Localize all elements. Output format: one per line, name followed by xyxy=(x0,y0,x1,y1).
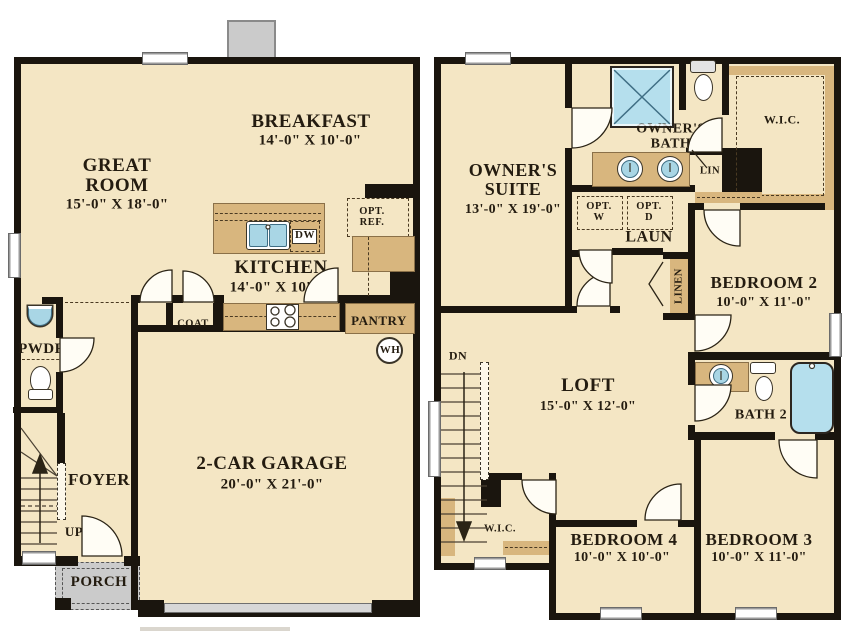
stove xyxy=(266,304,299,330)
wall xyxy=(14,57,420,64)
window xyxy=(829,313,842,357)
owners-suite-label: OWNER'S SUITE xyxy=(452,161,574,199)
wall xyxy=(663,313,695,320)
window xyxy=(22,551,56,565)
owners-toilet-tank xyxy=(690,60,716,73)
stair2-rail xyxy=(480,362,489,480)
window xyxy=(142,52,188,65)
wall xyxy=(365,184,413,198)
shower xyxy=(610,66,674,128)
wall xyxy=(688,210,695,315)
owners-bath-label: OWNER'S BATH xyxy=(624,122,718,151)
wall xyxy=(688,360,695,385)
porch-corner-wall xyxy=(55,598,71,610)
bath2-toilet-tank xyxy=(750,362,776,374)
wall xyxy=(688,203,704,210)
wall xyxy=(390,270,413,296)
garage-dims: 20'-0" X 21'-0" xyxy=(221,477,324,494)
owners-sink-right-basin xyxy=(661,160,679,178)
window xyxy=(428,401,441,477)
garage-door xyxy=(164,603,372,613)
wall xyxy=(612,248,663,255)
laun-label: LAUN xyxy=(625,230,672,247)
wall xyxy=(663,252,695,259)
wall xyxy=(42,297,63,304)
wall xyxy=(131,303,138,610)
opt-washer-label: OPT. W xyxy=(584,201,614,223)
bedroom2-label: BEDROOM 2 xyxy=(711,274,818,292)
ref-cabinet xyxy=(352,236,415,272)
opt-dash-line xyxy=(368,237,369,296)
wall xyxy=(679,64,686,110)
wic-owner-label: W.I.C. xyxy=(764,114,800,127)
dn-label: DN xyxy=(449,350,467,363)
wic2-label: W.I.C. xyxy=(484,523,516,534)
stair-rail xyxy=(57,463,66,520)
window xyxy=(8,233,21,278)
owners-suite-dims: 13'-0" X 19'-0" xyxy=(465,202,561,218)
wall xyxy=(688,432,775,440)
bedroom3-dims: 10'-0" X 11'-0" xyxy=(711,550,807,566)
bath2-toilet-bowl xyxy=(755,376,773,401)
linen-label: LINEN xyxy=(673,268,684,304)
bedroom2-dims: 10'-0" X 11'-0" xyxy=(716,295,812,311)
wall xyxy=(338,295,413,303)
window xyxy=(474,557,506,570)
island-sink-right xyxy=(269,224,287,247)
kitchen-label: KITCHEN xyxy=(234,258,327,278)
floorplan-canvas: GREAT ROOM 15'-0" X 18'-0" BREAKFAST 14'… xyxy=(0,0,843,632)
wic-dash-outline xyxy=(736,76,824,196)
wall xyxy=(434,57,441,570)
island-dash-1 xyxy=(215,213,321,214)
bathtub xyxy=(790,362,834,434)
opt-ref-label: OPT. REF. xyxy=(352,206,392,228)
owners-toilet-bowl xyxy=(694,74,713,101)
wall xyxy=(572,250,579,257)
breakfast-dims: 14'-0" X 10'-0" xyxy=(259,133,362,150)
wall xyxy=(495,473,522,480)
kitchen-dims: 14'-0" X 10'-0" xyxy=(230,280,333,297)
owners-sink-left-basin xyxy=(621,160,639,178)
wall xyxy=(372,600,413,615)
wic-shelf-right xyxy=(825,66,834,210)
lin-label: LIN xyxy=(700,165,720,176)
wic2-shelf-bottom xyxy=(503,541,549,555)
pwdr-toilet-base xyxy=(28,389,53,400)
porch-label: PORCH xyxy=(71,575,128,591)
wic2-shelf-left xyxy=(441,498,455,556)
wall xyxy=(549,473,556,570)
wall xyxy=(610,306,620,313)
bath2-sink-basin xyxy=(713,368,729,384)
wall xyxy=(549,563,556,620)
wall xyxy=(722,64,729,115)
wall xyxy=(413,57,420,617)
notch-patch-1 xyxy=(14,566,55,632)
island-sink-left xyxy=(249,224,268,247)
wall xyxy=(549,520,637,527)
wall xyxy=(56,372,63,410)
coat-label: COAT xyxy=(177,318,209,329)
notch-patch-3 xyxy=(434,570,549,632)
stair-wall xyxy=(57,413,65,463)
wall xyxy=(565,64,572,108)
wic-shelf-top xyxy=(729,66,834,75)
window xyxy=(600,607,642,620)
wh-label: WH xyxy=(380,345,401,357)
wall xyxy=(56,300,63,338)
wall xyxy=(678,520,694,527)
up-label: UP xyxy=(65,525,83,539)
wall xyxy=(138,600,164,615)
loft-label: LOFT xyxy=(561,376,615,396)
pwdr-label: PWDR xyxy=(18,342,66,358)
wall xyxy=(131,295,140,303)
wic2-shelf-dash xyxy=(505,547,547,548)
window xyxy=(735,607,777,620)
wall xyxy=(213,303,223,329)
opt-dryer-label: OPT. D xyxy=(634,201,664,223)
notch-patch-2 xyxy=(55,610,138,632)
wall xyxy=(172,295,183,303)
pwdr-dash xyxy=(22,359,64,360)
bedroom3-label: BEDROOM 3 xyxy=(706,531,813,549)
foyer-label: FOYER xyxy=(68,471,130,489)
foyer-opt-dash xyxy=(65,302,129,303)
bedroom4-label: BEDROOM 4 xyxy=(571,531,678,549)
wall xyxy=(14,57,21,566)
bed2-closet-dash xyxy=(697,197,760,198)
breakfast-label: BREAKFAST xyxy=(251,112,370,132)
wall xyxy=(214,295,224,303)
bedroom4-dims: 10'-0" X 10'-0" xyxy=(574,550,670,566)
great-room-dims: 15'-0" X 18'-0" xyxy=(66,197,169,214)
wall xyxy=(434,306,577,313)
cutoff-text-artifact xyxy=(140,627,290,631)
wall xyxy=(694,440,701,620)
loft-dims: 15'-0" X 12'-0" xyxy=(540,399,636,415)
wall xyxy=(688,352,841,360)
wall xyxy=(166,303,173,332)
dw-label: DW xyxy=(295,230,315,242)
great-room-label: GREAT ROOM xyxy=(61,156,173,196)
window xyxy=(465,52,511,65)
bath2-label: BATH 2 xyxy=(735,409,787,424)
garage-label: 2-CAR GARAGE xyxy=(196,454,347,474)
pantry-label: PANTRY xyxy=(351,314,407,328)
